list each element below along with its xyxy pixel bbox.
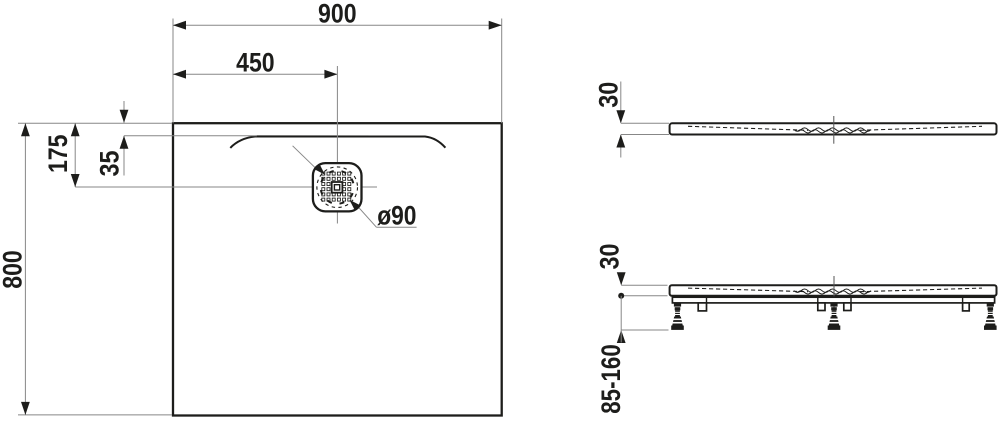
svg-text:800: 800 [0,250,28,289]
svg-text:30: 30 [594,244,624,270]
svg-text:175: 175 [43,135,73,174]
svg-text:450: 450 [236,47,275,77]
svg-text:85-160: 85-160 [596,344,626,414]
svg-text:35: 35 [94,151,124,177]
svg-text:900: 900 [318,0,357,29]
svg-text:30: 30 [593,82,623,108]
svg-text:ø90: ø90 [377,201,416,231]
